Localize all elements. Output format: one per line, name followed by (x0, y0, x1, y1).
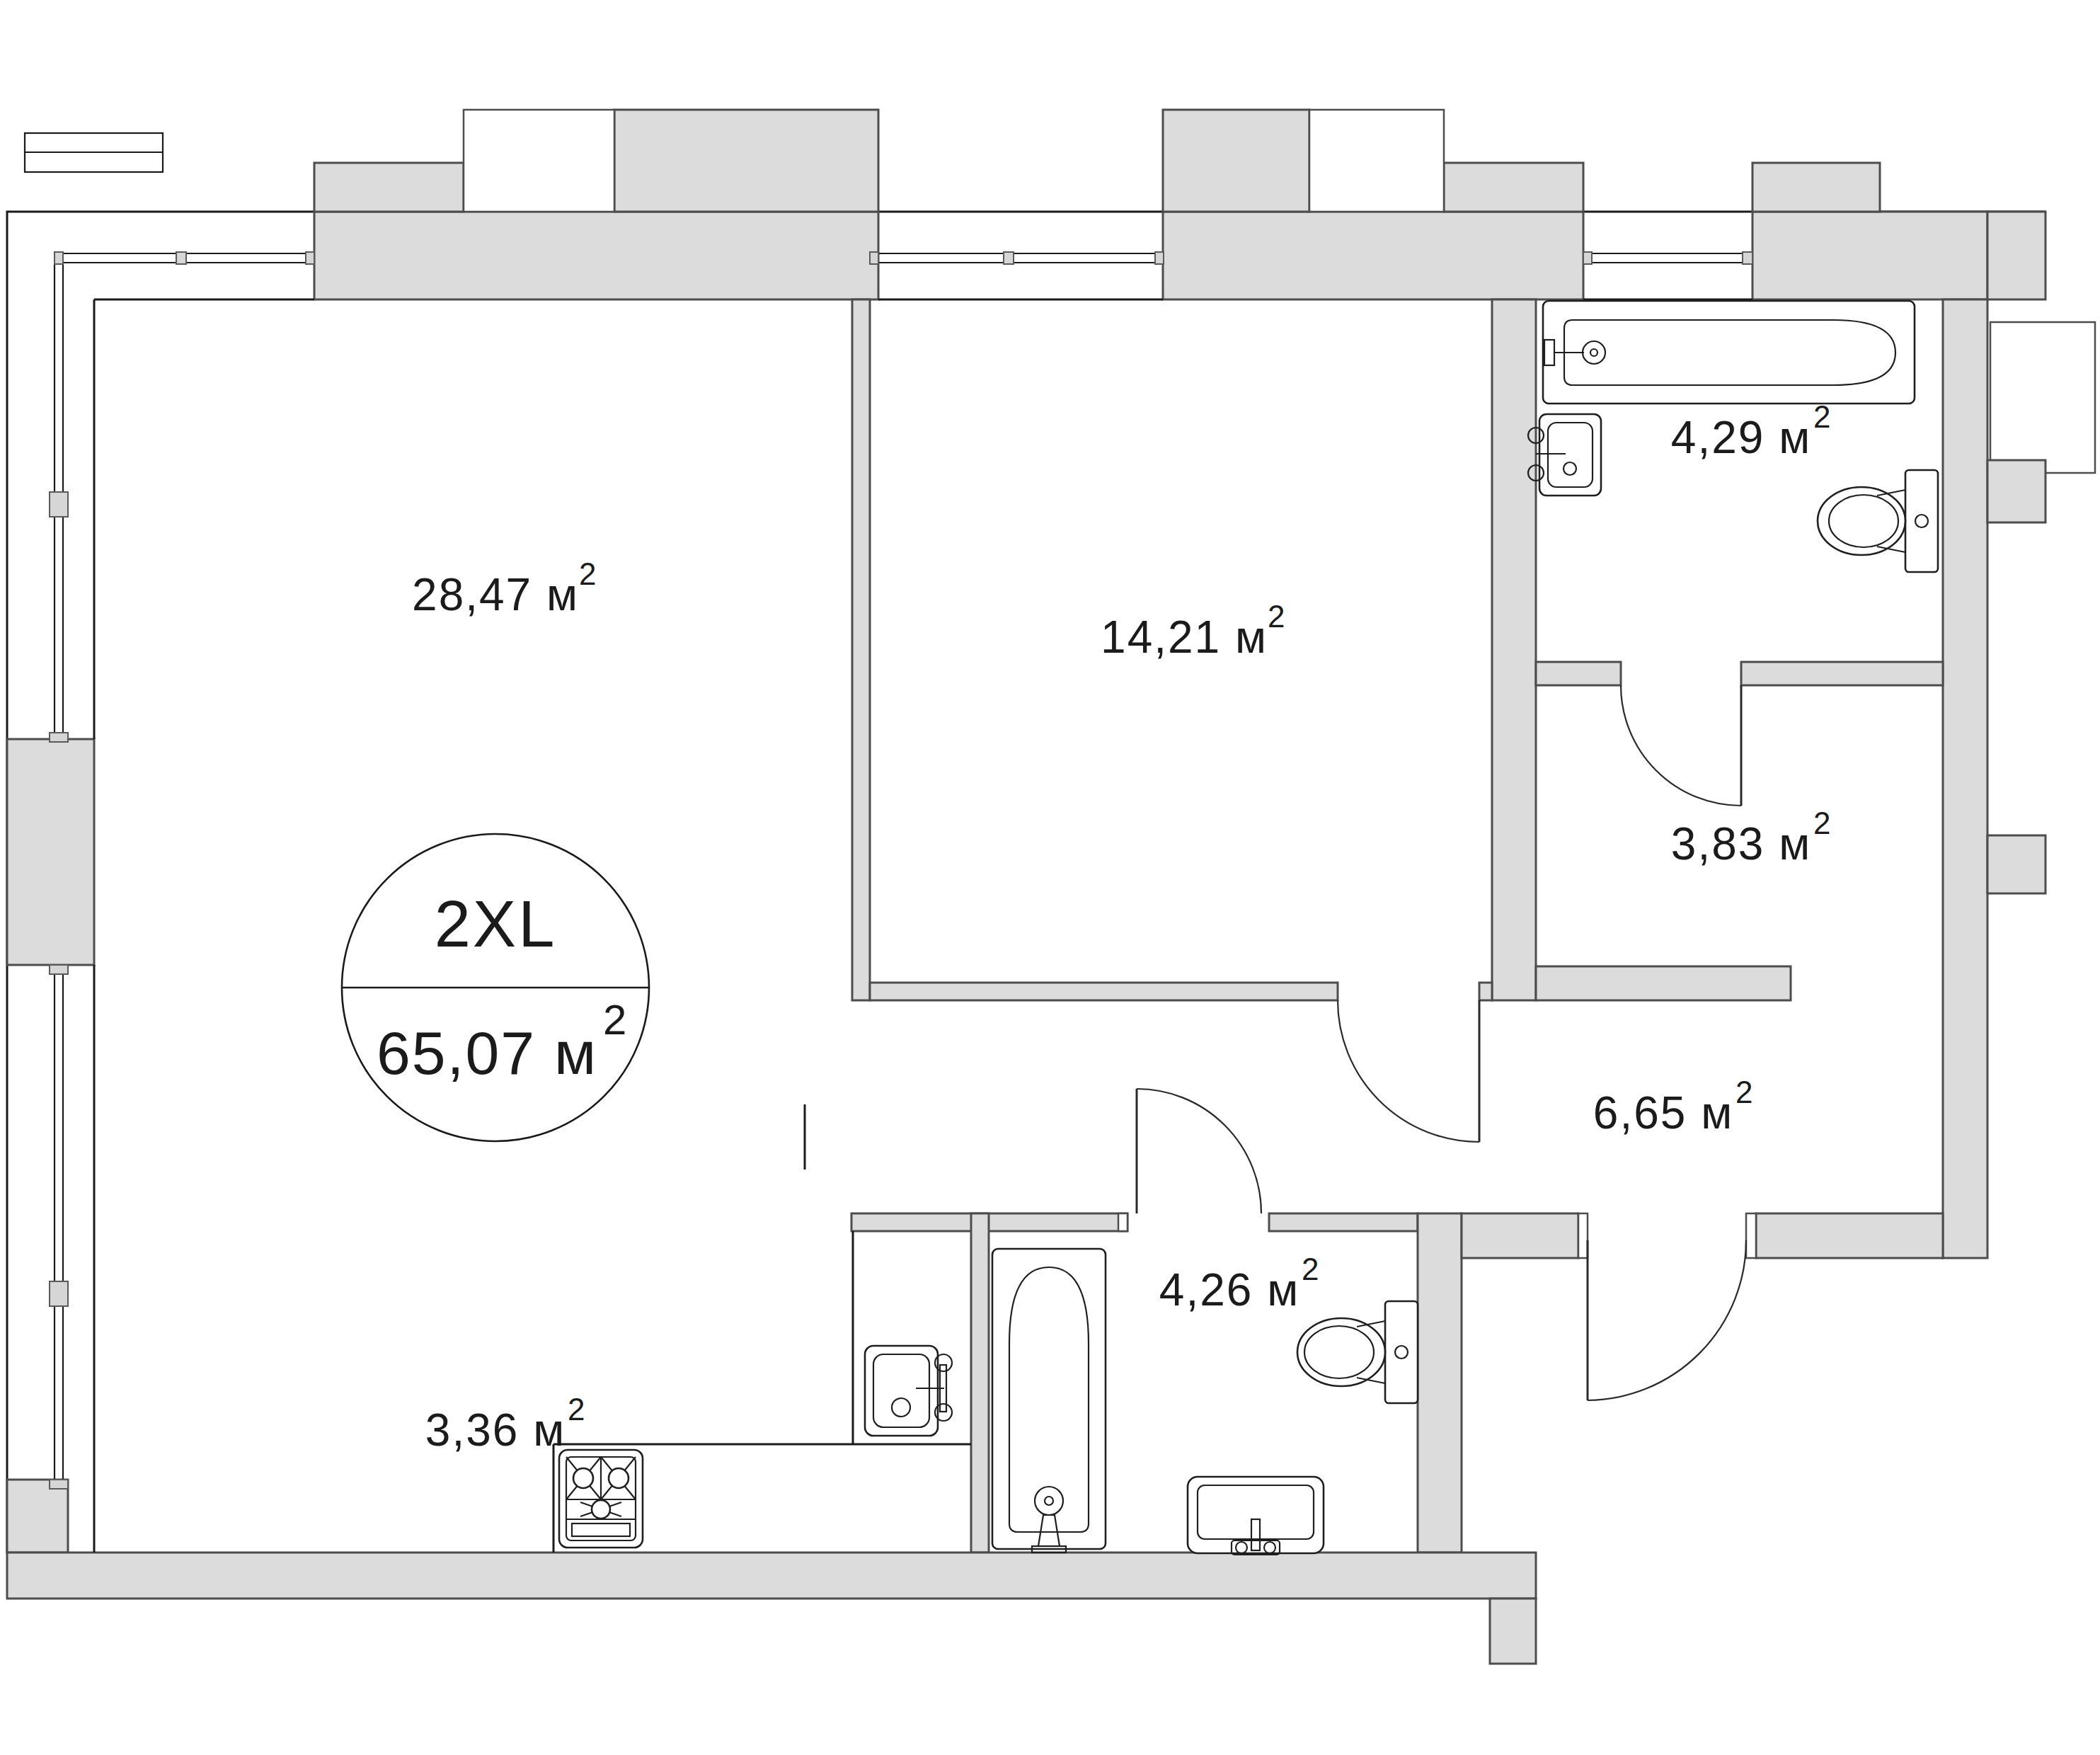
door-bedroom (1338, 1000, 1479, 1142)
wall-left-block (7, 739, 94, 965)
sink-outline (1188, 1477, 1324, 1553)
wall-stub (1163, 110, 1309, 212)
wall-bedroom-bottom (870, 983, 1338, 1000)
wall-bedroom-bottom (1479, 983, 1492, 1000)
room-label-bedroom: 14,21 м (1101, 612, 1268, 663)
window-mullion (1004, 252, 1014, 264)
room-label-corridor-sup: 2 (1735, 1075, 1752, 1109)
toilet-tank (1905, 470, 1938, 572)
window-mullion (54, 252, 63, 264)
kitchen-sink (865, 1346, 952, 1436)
stove-burner (609, 1468, 629, 1488)
bathtub-top (1543, 301, 1915, 404)
window-mullion (1155, 252, 1164, 264)
door-entry (1588, 1240, 1746, 1400)
wall-bedroom-bath (1492, 299, 1536, 1000)
window-mullion (50, 1281, 68, 1306)
wall-kitchen-bath (971, 1213, 989, 1553)
room-label-kitchen-sup: 2 (568, 1392, 585, 1427)
shaft-slot (1309, 110, 1444, 212)
wall-stub (1987, 460, 2046, 522)
window-mullion (50, 733, 68, 742)
door-arc (1588, 1240, 1746, 1400)
room-label-hallway-sup: 2 (1813, 806, 1830, 840)
room-label-bathroom-bottom: 4,26 м (1159, 1264, 1299, 1315)
window-mullion (176, 252, 186, 264)
badge-size-label: 2XL (435, 888, 557, 960)
window-mullion (1743, 252, 1752, 264)
room-label-living: 28,47 м (412, 569, 579, 620)
room-label-corridor: 6,65 м (1593, 1087, 1733, 1138)
stove-burner (573, 1468, 593, 1488)
window-mullion (50, 965, 68, 974)
shaft-slot (464, 110, 614, 212)
sink-top-bathroom (1528, 414, 1601, 496)
badge-area-label: 65,07 м (377, 1019, 597, 1087)
door-arc (1621, 685, 1741, 806)
wall-stub (614, 110, 878, 212)
sink-outline (865, 1346, 938, 1436)
window-mullion (870, 252, 878, 264)
room-label-bathroom-bottom-sup: 2 (1302, 1252, 1319, 1286)
room-label-bedroom-sup: 2 (1268, 599, 1285, 634)
bathtub-outline (1543, 301, 1915, 404)
floor-plan: 28,47 м 2 14,21 м 2 4,29 м 2 3,83 м 2 6,… (0, 0, 2100, 1755)
wall-segment (1752, 212, 1987, 299)
window-mullion (306, 252, 314, 264)
stove-burner (592, 1500, 610, 1519)
room-label-kitchen: 3,36 м (425, 1405, 566, 1456)
wall-stub (314, 163, 464, 212)
wall-left-block (7, 1480, 68, 1553)
sink-bottom-bathroom (1188, 1477, 1324, 1555)
door-jamb (1746, 1213, 1756, 1258)
window-mullion (50, 492, 68, 517)
door-bathroom-bottom (1137, 1089, 1261, 1213)
toilet-bowl (1818, 487, 1905, 555)
wall-segment (1163, 212, 1583, 299)
wall-stub (1987, 835, 2046, 893)
wall-bath-right (1418, 1213, 1462, 1553)
wall-entry-foot (1490, 1599, 1536, 1664)
window-mullion (50, 1480, 68, 1489)
wall-stub (1444, 163, 1583, 212)
stove (559, 1450, 643, 1548)
wall-bath-hallway (1741, 662, 1943, 685)
door-jamb (1118, 1213, 1128, 1231)
toilet-tank (1385, 1301, 1418, 1403)
room-label-hallway: 3,83 м (1671, 818, 1811, 869)
area-badge: 2XL 65,07 м 2 (342, 834, 649, 1141)
door-arc (1338, 1000, 1479, 1142)
room-label-living-sup: 2 (579, 556, 596, 591)
wall-hallway-bottom (1536, 966, 1791, 1000)
room-label-bathroom-top-sup: 2 (1813, 399, 1830, 434)
wall-corridor-bottom (1756, 1213, 1943, 1258)
wall-right-outer (1943, 299, 1987, 1258)
wall-segment (314, 212, 878, 299)
wall-corridor-bottom (1462, 1213, 1578, 1258)
window-mullion (1583, 252, 1592, 264)
shaft-slot (1990, 322, 2095, 473)
door-jamb (1578, 1213, 1588, 1258)
door-arc (1137, 1089, 1261, 1213)
wall-corridor-bath (1269, 1213, 1418, 1231)
room-label-bathroom-top: 4,29 м (1671, 412, 1811, 463)
wall-bath-hallway (1536, 662, 1621, 685)
toilet-bowl (1297, 1318, 1385, 1386)
wall-bottom-band (7, 1553, 1536, 1599)
door-hallway (1621, 685, 1741, 806)
wall-stub (1752, 163, 1880, 212)
toilet-top (1818, 470, 1938, 572)
badge-area-sup: 2 (603, 996, 626, 1044)
toilet-bottom (1297, 1301, 1418, 1403)
wall-living-bedroom (852, 299, 870, 1000)
wall-segment (1987, 212, 2046, 299)
bathtub-bottom (992, 1249, 1106, 1553)
floor-plan-canvas: 28,47 м 2 14,21 м 2 4,29 м 2 3,83 м 2 6,… (0, 0, 2100, 1755)
